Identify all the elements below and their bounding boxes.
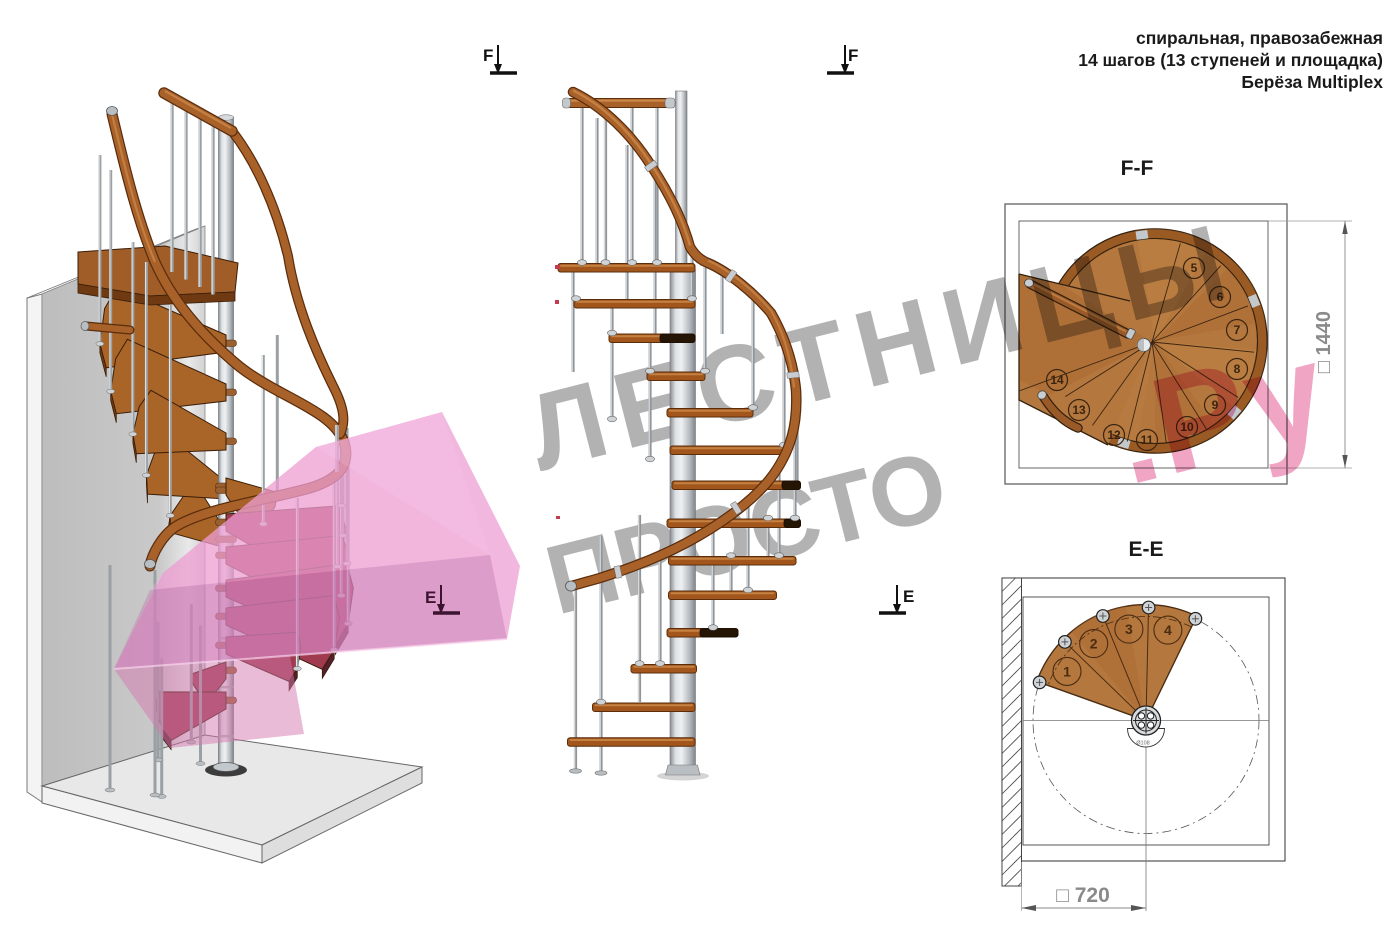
- svg-text:14: 14: [1050, 373, 1064, 387]
- svg-text:2: 2: [1090, 636, 1098, 652]
- svg-text:3: 3: [1125, 621, 1133, 637]
- svg-text:E: E: [425, 588, 436, 607]
- svg-text:□ 720: □ 720: [1056, 884, 1110, 907]
- svg-text:F-F: F-F: [1121, 157, 1154, 180]
- svg-text:Берёза Multiplex: Берёза Multiplex: [1241, 72, 1383, 92]
- svg-text:Ø108: Ø108: [1136, 741, 1149, 747]
- svg-text:13: 13: [1072, 403, 1086, 417]
- svg-text:F: F: [848, 46, 858, 65]
- svg-text:4: 4: [1164, 622, 1172, 638]
- svg-text:спиральная, правозабежная: спиральная, правозабежная: [1136, 28, 1383, 48]
- svg-text:1: 1: [1063, 663, 1071, 679]
- svg-text:E-E: E-E: [1128, 538, 1163, 561]
- svg-text:F: F: [483, 46, 493, 65]
- svg-text:14 шагов (13 ступеней и площад: 14 шагов (13 ступеней и площадка): [1078, 50, 1383, 70]
- svg-text:E: E: [903, 587, 914, 606]
